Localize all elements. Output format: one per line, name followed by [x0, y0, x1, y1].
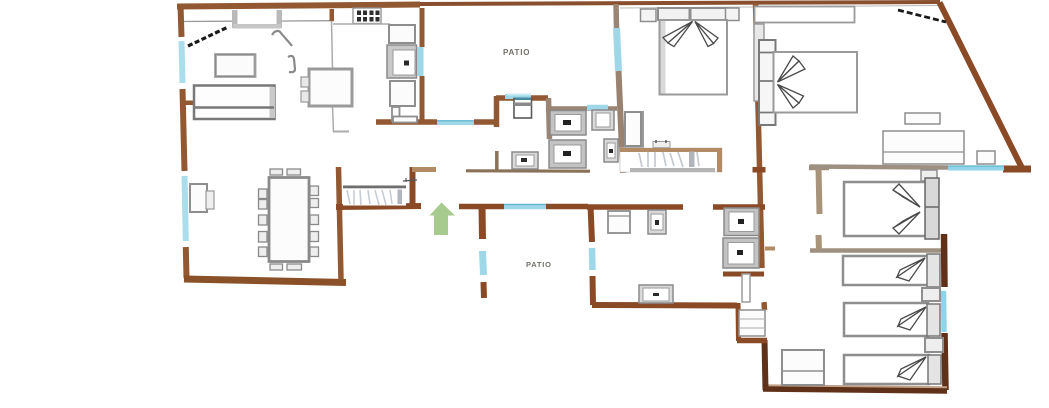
svg-text:PATIO: PATIO: [526, 260, 552, 269]
svg-text:PATIO: PATIO: [503, 48, 530, 57]
